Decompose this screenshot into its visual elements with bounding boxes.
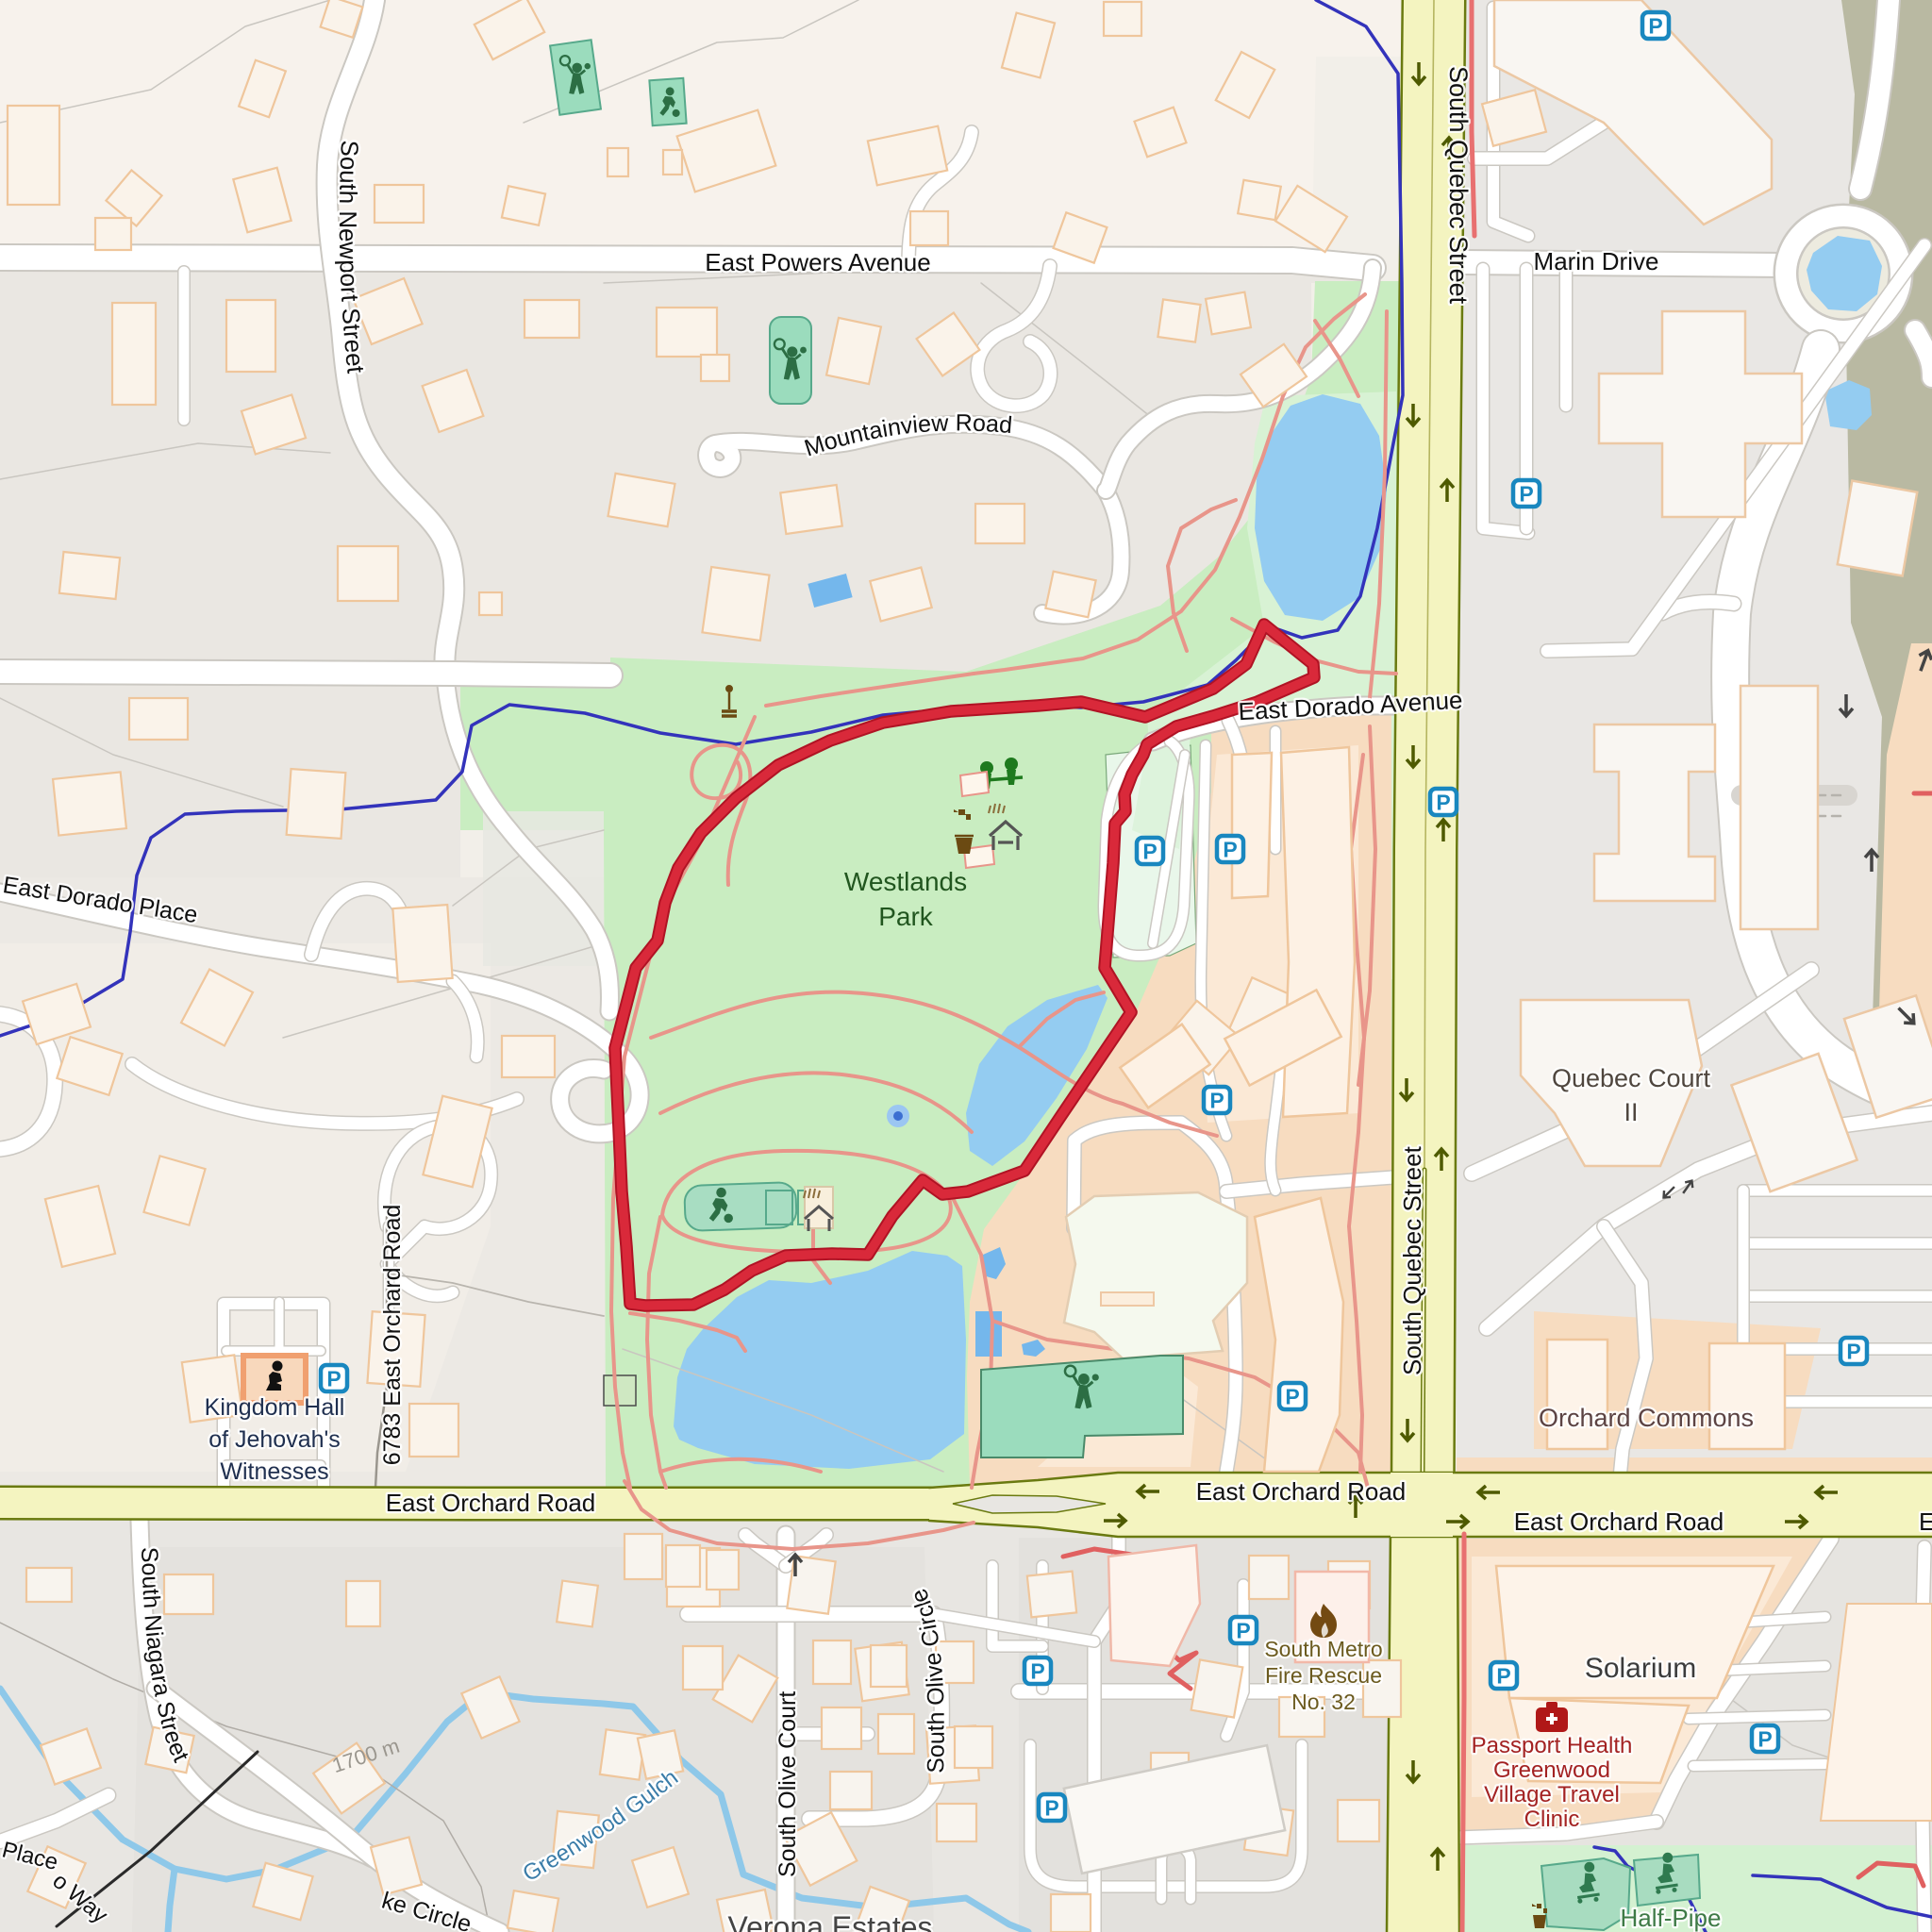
svg-text:P: P bbox=[1436, 791, 1450, 815]
svg-text:P: P bbox=[1209, 1089, 1224, 1113]
svg-text:South Quebec Street: South Quebec Street bbox=[1398, 1145, 1426, 1375]
svg-text:P: P bbox=[1757, 1727, 1772, 1752]
svg-text:P: P bbox=[1285, 1385, 1299, 1409]
svg-text:Clinic: Clinic bbox=[1524, 1807, 1580, 1832]
svg-text:6783 East Orchard Road: 6783 East Orchard Road bbox=[379, 1205, 406, 1466]
svg-text:P: P bbox=[1223, 838, 1237, 862]
svg-text:Village Travel: Village Travel bbox=[1484, 1782, 1620, 1807]
svg-text:P: P bbox=[1519, 482, 1533, 507]
svg-text:of Jehovah's: of Jehovah's bbox=[208, 1426, 341, 1453]
svg-text:Verona Estates: Verona Estates bbox=[727, 1910, 932, 1932]
svg-text:Fire Rescue: Fire Rescue bbox=[1265, 1663, 1382, 1688]
svg-text:Greenwood: Greenwood bbox=[1493, 1757, 1610, 1783]
svg-text:II: II bbox=[1624, 1098, 1638, 1126]
svg-text:East Orchard Road: East Orchard Road bbox=[1196, 1477, 1407, 1506]
svg-text:P: P bbox=[1236, 1619, 1250, 1643]
svg-text:Westlands: Westlands bbox=[844, 867, 967, 896]
svg-text:South Olive Court: South Olive Court bbox=[774, 1691, 801, 1877]
svg-text:East Orchard Road: East Orchard Road bbox=[386, 1489, 596, 1517]
svg-text:Park: Park bbox=[878, 902, 934, 931]
svg-text:Witnesses: Witnesses bbox=[220, 1458, 328, 1485]
svg-text:P: P bbox=[1142, 840, 1157, 864]
svg-text:East Powers Avenue: East Powers Avenue bbox=[705, 248, 930, 276]
svg-text:P: P bbox=[1648, 14, 1662, 39]
svg-text:Quebec Court: Quebec Court bbox=[1552, 1064, 1711, 1092]
svg-text:Kingdom Hall: Kingdom Hall bbox=[205, 1394, 345, 1421]
svg-text:Half-Pipe: Half-Pipe bbox=[1621, 1904, 1722, 1932]
svg-text:South Quebec Street: South Quebec Street bbox=[1444, 66, 1473, 305]
svg-text:No. 32: No. 32 bbox=[1291, 1690, 1356, 1714]
svg-text:P: P bbox=[1846, 1340, 1860, 1364]
svg-text:East: East bbox=[1919, 1507, 1932, 1536]
svg-text:Marin Drive: Marin Drive bbox=[1534, 247, 1659, 275]
svg-text:Orchard Commons: Orchard Commons bbox=[1539, 1404, 1754, 1432]
svg-text:South Metro: South Metro bbox=[1264, 1637, 1382, 1661]
svg-text:P: P bbox=[326, 1367, 341, 1391]
svg-text:P: P bbox=[1044, 1796, 1058, 1821]
svg-text:Solarium: Solarium bbox=[1585, 1653, 1696, 1684]
svg-text:East Orchard Road: East Orchard Road bbox=[1514, 1507, 1724, 1536]
svg-text:P: P bbox=[1030, 1659, 1044, 1684]
svg-text:P: P bbox=[1496, 1664, 1510, 1689]
svg-text:Passport Health: Passport Health bbox=[1472, 1733, 1633, 1758]
